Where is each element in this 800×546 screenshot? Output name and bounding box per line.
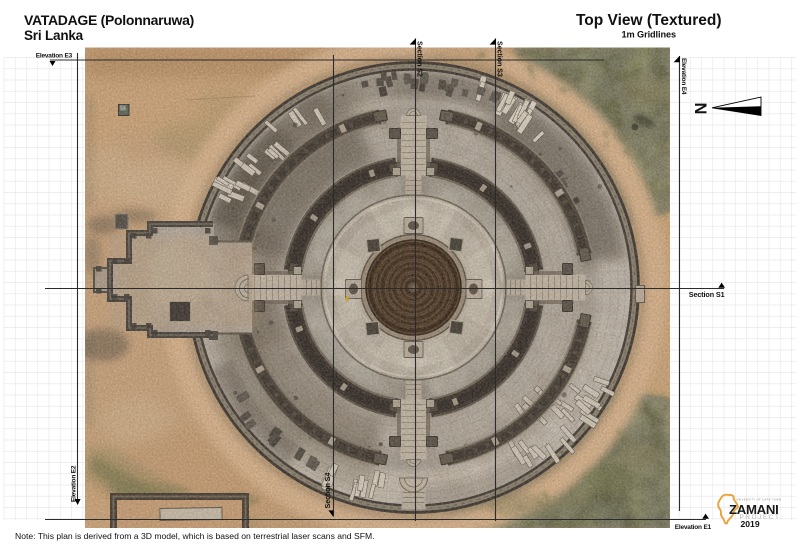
svg-text:Sri Lanka: Sri Lanka xyxy=(24,28,84,43)
svg-text:Elevation E1: Elevation E1 xyxy=(675,524,712,531)
svg-text:VATADAGE (Polonnaruwa): VATADAGE (Polonnaruwa) xyxy=(24,12,194,28)
svg-text:1m Gridlines: 1m Gridlines xyxy=(622,30,676,40)
svg-text:2019: 2019 xyxy=(741,519,760,529)
svg-text:N: N xyxy=(691,103,709,115)
svg-text:Section S4: Section S4 xyxy=(323,473,332,509)
svg-text:Elevation E4: Elevation E4 xyxy=(680,58,687,95)
svg-text:Section S1: Section S1 xyxy=(689,290,725,299)
svg-text:Note: This plan is derived fro: Note: This plan is derived from a 3D mod… xyxy=(15,531,375,541)
svg-text:Section S3: Section S3 xyxy=(495,41,504,77)
svg-text:Elevation E2: Elevation E2 xyxy=(71,465,78,502)
svg-text:UNIVERSITY OF CAPE TOWN: UNIVERSITY OF CAPE TOWN xyxy=(736,498,781,502)
svg-text:Section S2: Section S2 xyxy=(415,41,424,77)
svg-text:Top View (Textured): Top View (Textured) xyxy=(576,12,722,29)
svg-text:Elevation E3: Elevation E3 xyxy=(36,53,73,60)
